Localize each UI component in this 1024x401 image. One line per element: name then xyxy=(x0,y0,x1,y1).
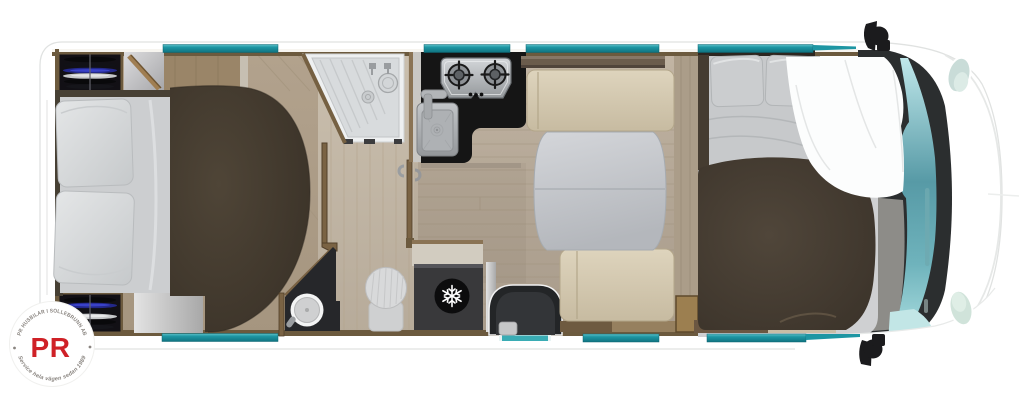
svg-text:PR: PR xyxy=(31,332,71,363)
